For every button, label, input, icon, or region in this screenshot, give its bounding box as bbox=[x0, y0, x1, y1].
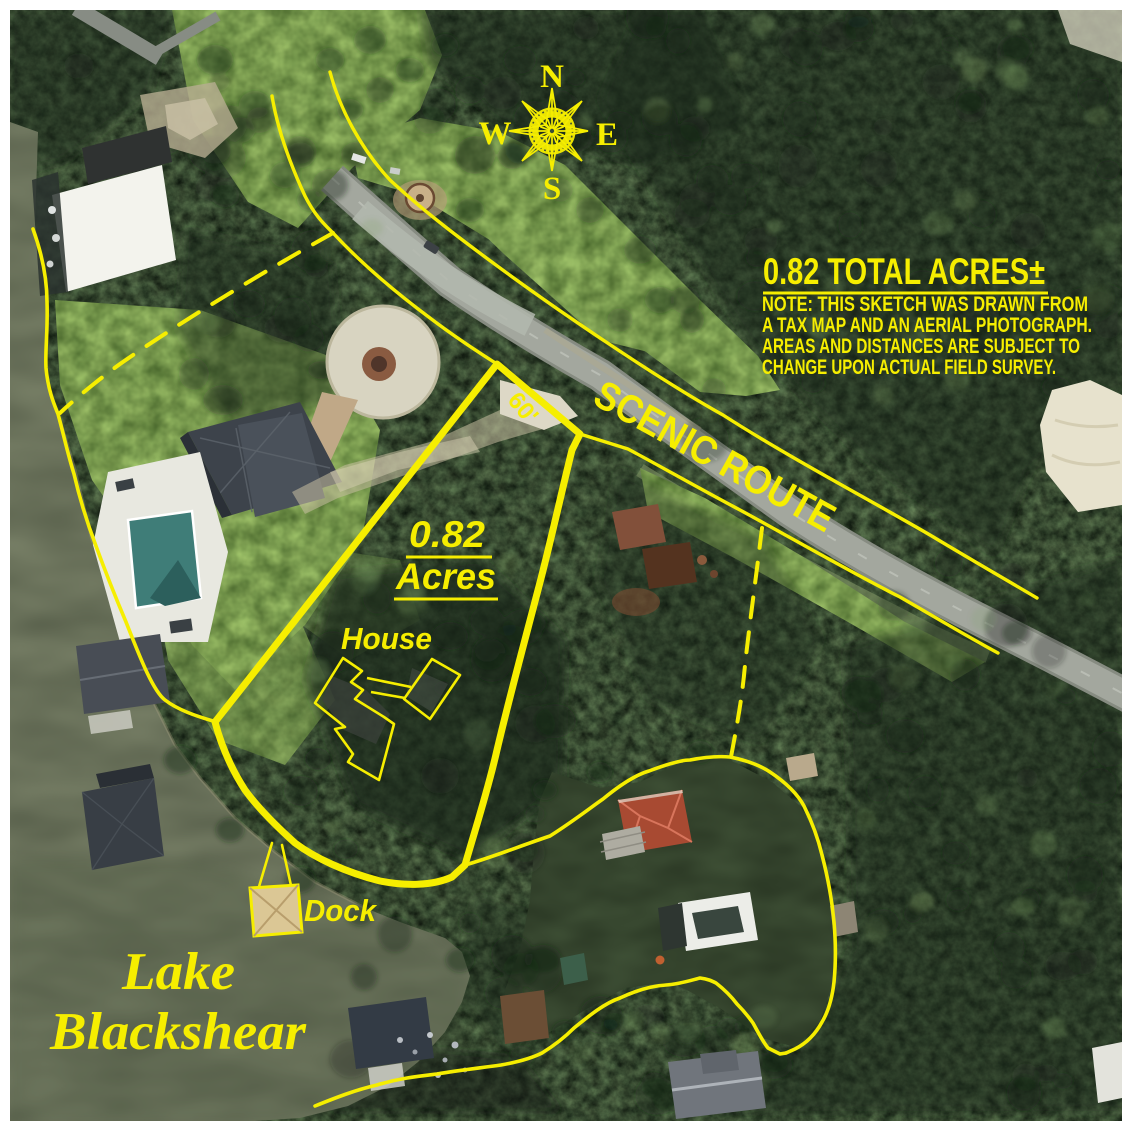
svg-text:House: House bbox=[341, 621, 432, 656]
svg-text:Dock: Dock bbox=[304, 893, 378, 928]
svg-text:Lake: Lake bbox=[121, 943, 235, 1001]
svg-text:0.82: 0.82 bbox=[409, 514, 485, 555]
svg-text:W: W bbox=[479, 116, 512, 152]
svg-text:0.82 TOTAL ACRES±: 0.82 TOTAL ACRES± bbox=[763, 251, 1045, 292]
svg-text:E: E bbox=[596, 117, 618, 153]
svg-text:S: S bbox=[543, 171, 561, 207]
svg-text:CHANGE UPON ACTUAL FIELD SURVE: CHANGE UPON ACTUAL FIELD SURVEY. bbox=[762, 356, 1056, 379]
svg-text:A TAX MAP AND AN AERIAL PHOTOG: A TAX MAP AND AN AERIAL PHOTOGRAPH. bbox=[762, 314, 1092, 337]
svg-text:N: N bbox=[540, 59, 564, 95]
svg-text:AREAS AND DISTANCES ARE SUBJEC: AREAS AND DISTANCES ARE SUBJECT TO bbox=[762, 335, 1080, 358]
svg-text:NOTE: THIS SKETCH WAS DRAWN FR: NOTE: THIS SKETCH WAS DRAWN FROM bbox=[762, 293, 1088, 316]
svg-text:Blackshear: Blackshear bbox=[49, 1003, 307, 1061]
svg-text:Acres: Acres bbox=[395, 556, 496, 597]
